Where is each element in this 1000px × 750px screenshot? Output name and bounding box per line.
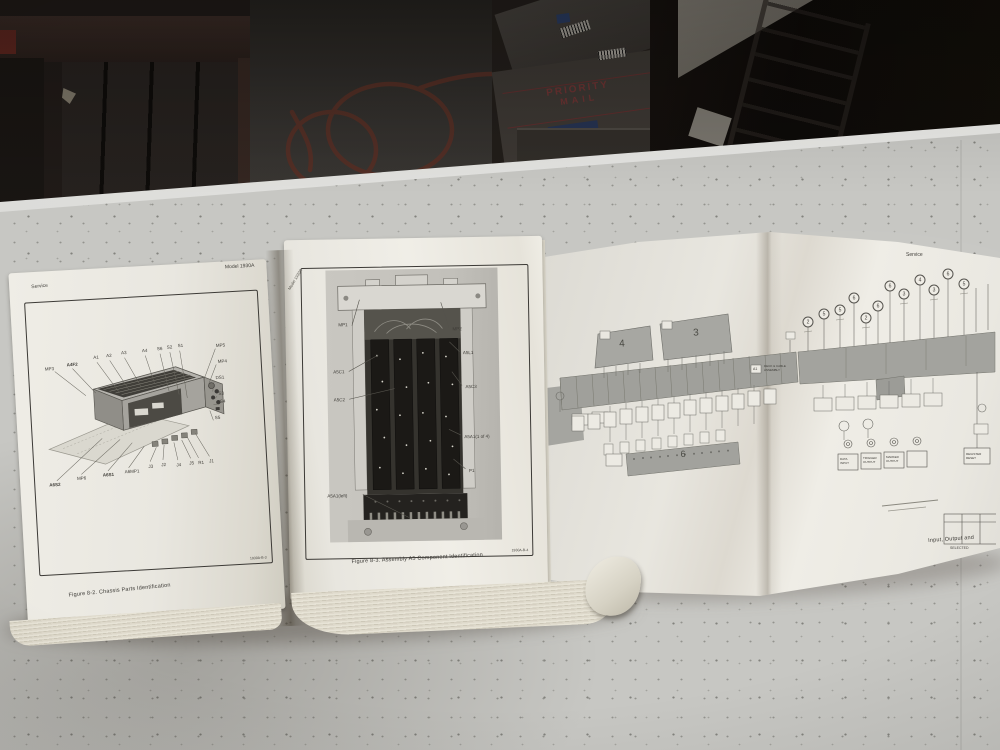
callout: J3 <box>148 464 153 469</box>
callout: A1 <box>93 355 99 360</box>
left-page-header-right: Model 1930A <box>225 263 255 271</box>
circled-number: 6 <box>873 301 884 312</box>
callout: A2 <box>106 353 112 358</box>
circled-number: 2 <box>861 313 872 324</box>
callout: A5C3 <box>465 384 476 389</box>
callout: A5L1 <box>463 350 474 355</box>
assembly-leader-lines <box>301 265 532 559</box>
callout: A5A1(left) <box>327 493 347 498</box>
callout: DS1 <box>215 375 224 380</box>
a1-assembly-label-2: ASSEMBLY <box>764 368 780 372</box>
callout: S1 <box>178 343 184 348</box>
middle-page: Model 1930A <box>284 236 548 600</box>
circled-number: 6 <box>943 269 954 280</box>
circled-number: 6 <box>849 293 860 304</box>
table-selected-note: SELECTED <box>950 546 968 550</box>
callout: A5C2 <box>334 397 345 402</box>
reset-box-l2: RESET <box>966 456 976 460</box>
chassis-drawing <box>25 291 272 576</box>
callout: MP4 <box>218 358 228 364</box>
callout: MP3 <box>45 366 55 372</box>
callout: A5C1 <box>333 369 344 374</box>
figure-8-2-caption: Figure 8-2. Chassis Parts Identification <box>68 582 171 598</box>
callout: A3 <box>121 350 127 355</box>
block-3-number: 3 <box>693 327 699 338</box>
callout: MP2 <box>452 326 461 331</box>
left-page-header-left: Service <box>31 283 48 290</box>
circled-number: 4 <box>915 275 926 286</box>
bar-6-number: 6 <box>680 449 686 459</box>
circled-number: 5 <box>835 305 846 316</box>
callout: J1 <box>209 458 214 463</box>
callout: MP6 <box>77 475 87 481</box>
callout: A6S2 <box>49 482 61 488</box>
figure-code: 1930A-B-4 <box>512 548 529 552</box>
circled-number: 2 <box>803 317 814 328</box>
circled-number: 5 <box>959 279 970 290</box>
callout: S4 <box>220 399 226 404</box>
callout: A6S1 <box>103 472 115 478</box>
left-page: Service Model 1930A <box>8 259 285 623</box>
callout: R1 <box>198 460 204 465</box>
callout: MP5 <box>216 342 226 348</box>
callout: A4F2 <box>66 362 77 368</box>
callout: S2 <box>167 344 173 349</box>
circled-number: 6 <box>885 281 896 292</box>
io-box-1-l2: INPUT <box>840 461 849 465</box>
io-box-2-l2: OUTPUT <box>863 460 875 464</box>
callout: S6 <box>157 346 163 351</box>
block-4-number: 4 <box>619 338 625 349</box>
io-box-3-l2: OUTPUT <box>886 459 898 463</box>
callout: P1 <box>469 468 475 473</box>
callout: J2 <box>161 462 166 467</box>
callout: S5 <box>215 415 221 420</box>
callout: A5A1(1 of 4) <box>464 434 489 439</box>
callout: A6MP1 <box>125 468 140 474</box>
circled-number: 3 <box>929 285 940 296</box>
circled-number: 3 <box>899 289 910 300</box>
callout: A4 <box>142 348 148 353</box>
figure-8-2-frame: A1 A2 A3 A4 S6 S2 S1 MP5 MP4 DS1 S3 S4 S… <box>24 290 273 577</box>
figure-8-3-frame: MP1 A5C1 A5C2 A5A1(left) MP2 A5L1 A5C3 A… <box>300 264 533 560</box>
callout: S3 <box>218 391 224 396</box>
callout: J4 <box>176 462 181 467</box>
a1-ref-label: A1 <box>753 367 757 371</box>
callout: J5 <box>189 460 194 465</box>
workshop-photo-scene: PRIORITY MAIL <box>0 0 1000 750</box>
foldout-header-service: Service <box>906 252 923 258</box>
callout: MP1 <box>338 322 347 327</box>
circled-number: 5 <box>819 309 830 320</box>
foldout-schematic-pages: Service 4 3 6 A1 DECK & CABLE ASSEMBLY 2… <box>538 228 1000 600</box>
